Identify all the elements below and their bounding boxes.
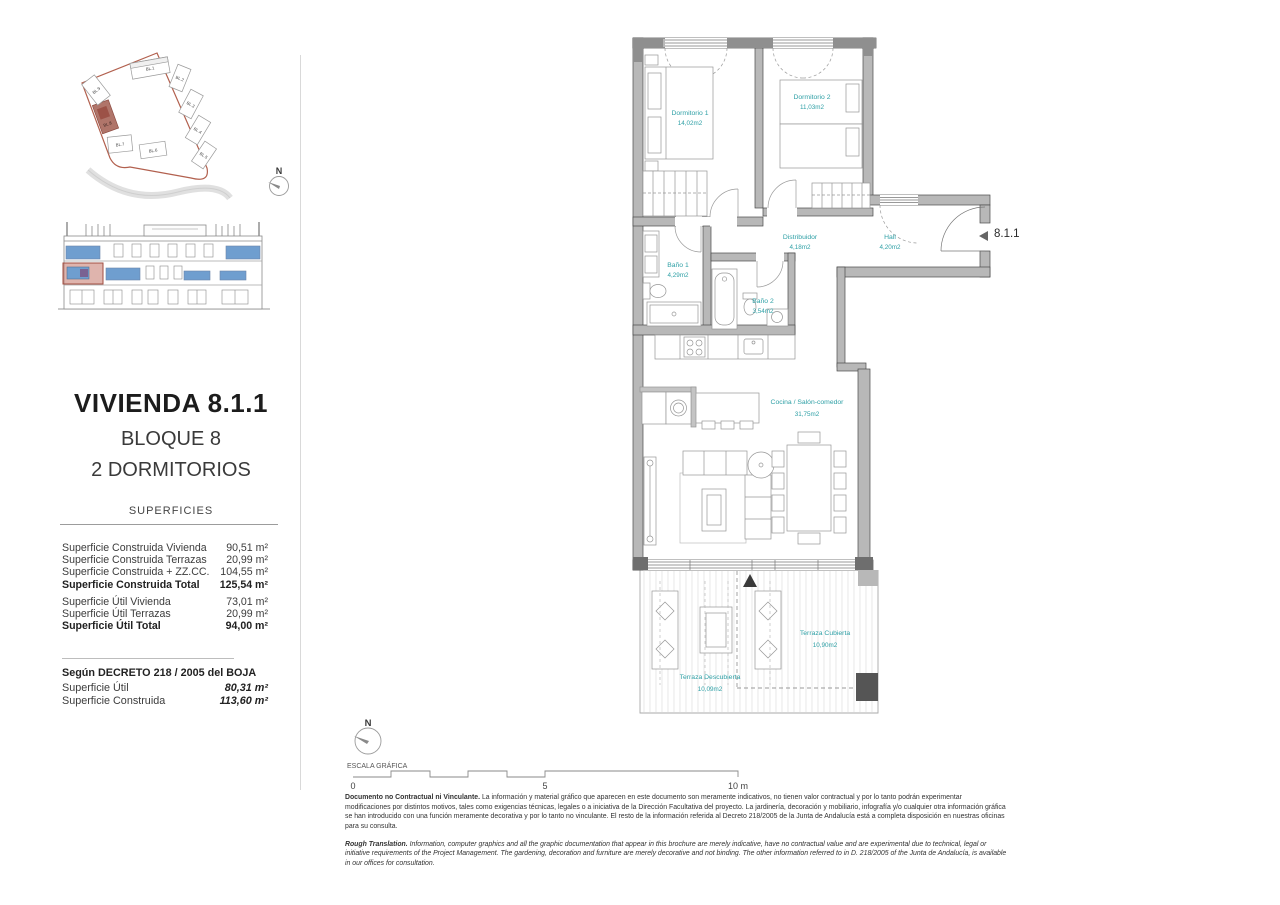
area-label: Superficie Útil Total (62, 620, 161, 632)
site-road (88, 170, 230, 198)
radiator (644, 457, 656, 545)
area-value: 90,51 m² (226, 542, 268, 554)
brochure-page: BL.1 BL.2 BL.3 BL.4 BL.5 BL.6 (0, 0, 1280, 905)
terrace-sliding-door (648, 560, 855, 570)
door-dorm2 (768, 180, 796, 208)
svg-text:Cocina / Salón-comedor: Cocina / Salón-comedor (771, 399, 845, 406)
svg-text:11,03m2: 11,03m2 (800, 104, 825, 111)
room-label-terraza-cubierta: Terraza Cubierta 10,90m2 (800, 630, 850, 649)
side-table (748, 452, 774, 478)
wall-hall-bottom (837, 267, 990, 277)
disclaimer-english-lead: Rough Translation. (345, 841, 408, 848)
scale-bar-steps (353, 771, 738, 777)
svg-text:8.1.1: 8.1.1 (994, 228, 1020, 240)
site-block: BL.5 (191, 141, 216, 169)
area-value: 73,01 m² (226, 596, 268, 608)
decreto-table: Según DECRETO 218 / 2005 del BOJA Superf… (62, 667, 268, 707)
terrace-sofa (755, 591, 781, 669)
scale-compass-icon: N (354, 718, 381, 754)
area-value: 20,99 m² (226, 608, 268, 620)
area-value: 104,55 m² (220, 566, 268, 578)
table-row: Superficie Útil Terrazas 20,99 m² (62, 608, 268, 620)
room-label-distribuidor: Distribuidor 4,18m2 (783, 234, 818, 251)
room-label-bano1: Baño 1 4,29m2 (667, 262, 689, 279)
laundry-niche (640, 387, 696, 427)
disclaimer-spanish-lead: Documento no Contractual ni Vinculante. (345, 794, 480, 801)
svg-text:5: 5 (542, 781, 547, 791)
svg-text:0: 0 (350, 781, 355, 791)
table-row-total: Superficie Construida Total 125,54 m² (62, 579, 268, 591)
svg-text:31,75m2: 31,75m2 (795, 411, 820, 418)
area-value: 94,00 m² (226, 620, 268, 632)
area-value: 80,31 m² (225, 682, 268, 695)
svg-text:14,02m2: 14,02m2 (678, 120, 703, 127)
area-value: 125,54 m² (220, 579, 268, 591)
area-label: Superficie Construida Vivienda (62, 542, 207, 554)
title-block: VIVIENDA 8.1.1 BLOQUE 8 2 DORMITORIOS (40, 388, 302, 482)
block-subtitle: BLOQUE 8 (40, 428, 302, 451)
wall-bath2-east (788, 253, 795, 335)
area-label: Superficie Construida + ZZ.CC. (62, 566, 210, 578)
stove-icon (684, 337, 705, 357)
wall-entrance-top-jamb (980, 205, 990, 223)
svg-text:Dormitorio 2: Dormitorio 2 (793, 94, 830, 101)
elevation-highlighted-unit (63, 263, 103, 284)
decreto-header: Según DECRETO 218 / 2005 del BOJA (62, 667, 268, 680)
toilet (643, 283, 650, 299)
superficies-table: Superficie Construida Vivienda 90,51 m² … (62, 542, 268, 632)
site-block: BL.7 (107, 135, 133, 153)
wall-dorm1-south2 (736, 217, 763, 226)
building-elevation (56, 216, 272, 316)
wall-bedroom-partition (755, 48, 763, 208)
svg-text:10,09m2: 10,09m2 (698, 686, 723, 693)
table-row: Superficie Construida Vivienda 90,51 m² (62, 542, 268, 554)
north-triangle-icon (743, 574, 757, 587)
svg-text:Terraza Cubierta: Terraza Cubierta (800, 630, 850, 637)
superficies-header: SUPERFICIES (40, 505, 302, 517)
page-title: VIVIENDA 8.1.1 (40, 388, 302, 419)
coffee-table (702, 489, 726, 531)
window-swing-arc (803, 48, 833, 78)
svg-text:Dormitorio 1: Dormitorio 1 (671, 110, 708, 117)
wall-right-upper (863, 38, 873, 203)
wardrobe (812, 183, 870, 208)
area-value: 113,60 m² (220, 695, 268, 708)
area-label: Superficie Útil Terrazas (62, 608, 171, 620)
site-block: BL.4 (185, 115, 210, 144)
svg-text:4,18m2: 4,18m2 (789, 244, 811, 251)
table-row: Superficie Construida 113,60 m² (62, 695, 268, 708)
dining-table (772, 432, 846, 544)
svg-text:Hall: Hall (884, 234, 896, 241)
area-value: 20,99 m² (226, 554, 268, 566)
area-label: Superficie Construida Total (62, 579, 200, 591)
superficies-rule (60, 524, 278, 525)
door-bath1 (675, 226, 701, 252)
svg-text:10,90m2: 10,90m2 (813, 642, 838, 649)
disclaimer-spanish: Documento no Contractual ni Vinculante. … (345, 793, 1007, 832)
entrance-unit-label: 8.1.1 (979, 228, 1020, 241)
area-label: Superficie Construida Terrazas (62, 554, 207, 566)
site-block: BL.3 (179, 89, 204, 119)
wall-bath-partition (703, 226, 711, 328)
area-label: Superficie Útil (62, 682, 129, 695)
table-row: Superficie Útil Vivienda 73,01 m² (62, 596, 268, 608)
svg-text:Baño 1: Baño 1 (667, 262, 689, 269)
site-block: BL.6 (139, 141, 167, 158)
room-label-cocina-salon: Cocina / Salón-comedor 31,75m2 (771, 399, 845, 418)
wall-living-right (858, 369, 870, 570)
wardrobe (643, 171, 707, 216)
svg-text:Terraza Descubierta: Terraza Descubierta (680, 674, 741, 681)
wall-corridor (837, 267, 845, 367)
door-dorm1 (710, 189, 738, 217)
svg-text:ESCALA GRÁFICA: ESCALA GRÁFICA (347, 761, 408, 770)
table-row-total: Superficie Útil Total 94,00 m² (62, 620, 268, 632)
svg-text:3,54m2: 3,54m2 (752, 308, 774, 315)
site-block-highlighted: BL.8 (92, 100, 118, 134)
kitchen-counter (655, 335, 795, 359)
bedrooms-subtitle: 2 DORMITORIOS (40, 459, 302, 482)
site-block: BL.2 (169, 64, 191, 91)
window-swing-arc (773, 48, 803, 78)
disclaimer-english-body: Information, computer graphics and all t… (345, 841, 1006, 867)
table-row: Superficie Construida Terrazas 20,99 m² (62, 554, 268, 566)
window-dorm1 (665, 38, 727, 48)
disclaimer-english: Rough Translation. Information, computer… (345, 840, 1007, 869)
area-label: Superficie Útil Vivienda (62, 596, 171, 608)
site-blocks: BL.1 BL.2 BL.3 BL.4 BL.5 BL.6 (82, 57, 217, 169)
door-bath2 (757, 261, 783, 287)
svg-text:10 m: 10 m (728, 781, 748, 791)
table-row: Superficie Construida + ZZ.CC. 104,55 m² (62, 566, 268, 578)
area-label: Superficie Construida (62, 695, 165, 708)
svg-text:4,20m2: 4,20m2 (879, 244, 901, 251)
table-row: Superficie Útil 80,31 m² (62, 682, 268, 695)
site-compass-icon: N (268, 166, 289, 196)
svg-text:Distribuidor: Distribuidor (783, 234, 818, 241)
svg-text:BL.7: BL.7 (116, 141, 126, 147)
svg-text:4,29m2: 4,29m2 (667, 272, 689, 279)
svg-text:N: N (365, 718, 372, 729)
terrace-sofa (652, 591, 678, 669)
site-plan: BL.1 BL.2 BL.3 BL.4 BL.5 BL.6 (58, 28, 298, 203)
scale-bar: N ESCALA GRÁFICA 0 5 10 m (345, 712, 805, 792)
svg-text:Baño 2: Baño 2 (752, 298, 774, 305)
entrance-arrow-icon (979, 231, 988, 241)
window-dorm2 (773, 38, 833, 48)
bed-single (780, 124, 862, 168)
room-label-hall: Hall 4,20m2 (879, 234, 901, 251)
disclaimer: Documento no Contractual ni Vinculante. … (345, 793, 1007, 877)
kitchen-sink-icon (744, 339, 763, 354)
door-entrance (941, 207, 985, 251)
window-hall (880, 195, 918, 205)
decreto-rule (62, 658, 234, 659)
wall-bath2-north (711, 253, 757, 261)
wall-left (633, 38, 643, 570)
bed-single (780, 80, 862, 124)
kitchen-island (695, 393, 759, 429)
svg-text:N: N (276, 166, 283, 176)
floor-plan: Dormitorio 1 14,02m2 Dormitorio 2 11,03m… (600, 25, 1060, 725)
site-block: BL.1 (130, 57, 170, 79)
